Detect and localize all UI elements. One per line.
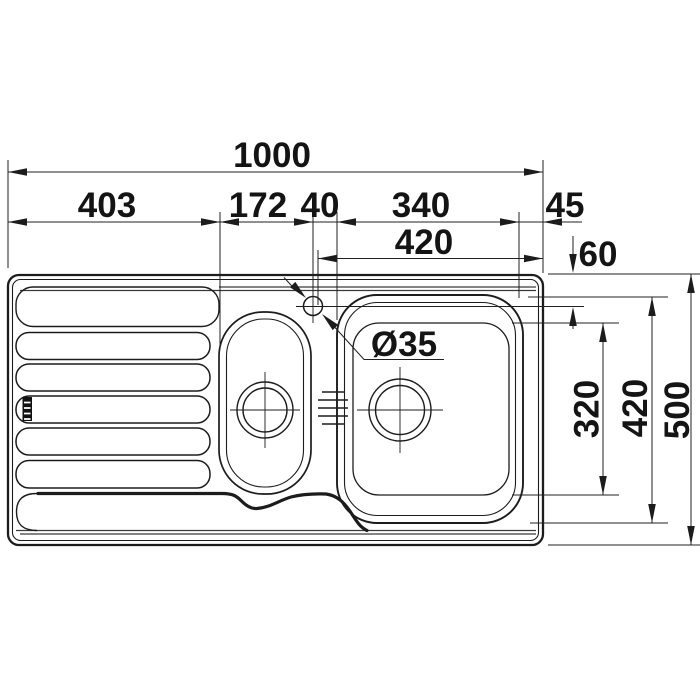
drainboard-rib: [16, 428, 210, 455]
small-drain-crosshair: [230, 372, 300, 448]
small-bowl: [219, 312, 311, 494]
ledge-lines: [16, 287, 536, 534]
franke-logo: [23, 397, 33, 421]
drawing-page: 1000 403 172 40 340 45 420 60 Ø35 320 42…: [0, 0, 700, 700]
dim-label-bowl-to-edge: 45: [546, 186, 585, 225]
main-drain-crosshair: [357, 367, 443, 453]
drainboard-rib: [16, 461, 210, 489]
dim-label-bowl-inner-depth: 320: [568, 380, 607, 438]
drainboard-rib: [16, 396, 210, 423]
drainboard-rib: [16, 333, 210, 360]
sink-technical-drawing: 1000 403 172 40 340 45 420 60 Ø35 320 42…: [0, 0, 700, 700]
overflow-marks: [318, 392, 348, 424]
drainboard-top-band: [16, 287, 219, 327]
shadow-contour: [38, 494, 367, 531]
dim-label-bowl-width: 340: [392, 186, 450, 225]
dim-label-tap-to-bowl: 40: [301, 186, 340, 225]
dim-label-overall-width: 1000: [233, 136, 311, 175]
dim-label-drainboard-width: 403: [78, 186, 136, 225]
dim-label-bowl-outer-depth: 420: [616, 379, 655, 437]
dim-label-drainboard-to-tap: 172: [229, 186, 287, 225]
drainboard-bottom-band: [17, 494, 223, 531]
drainboard-rib: [16, 364, 210, 391]
sink-body: [8, 275, 543, 545]
dim-label-bowl-zone-width: 420: [395, 223, 453, 262]
dim-label-overall-depth: 500: [658, 381, 697, 439]
dim-label-tap-hole-diameter: Ø35: [371, 325, 437, 364]
dim-label-tap-center-from-back: 60: [579, 235, 618, 274]
